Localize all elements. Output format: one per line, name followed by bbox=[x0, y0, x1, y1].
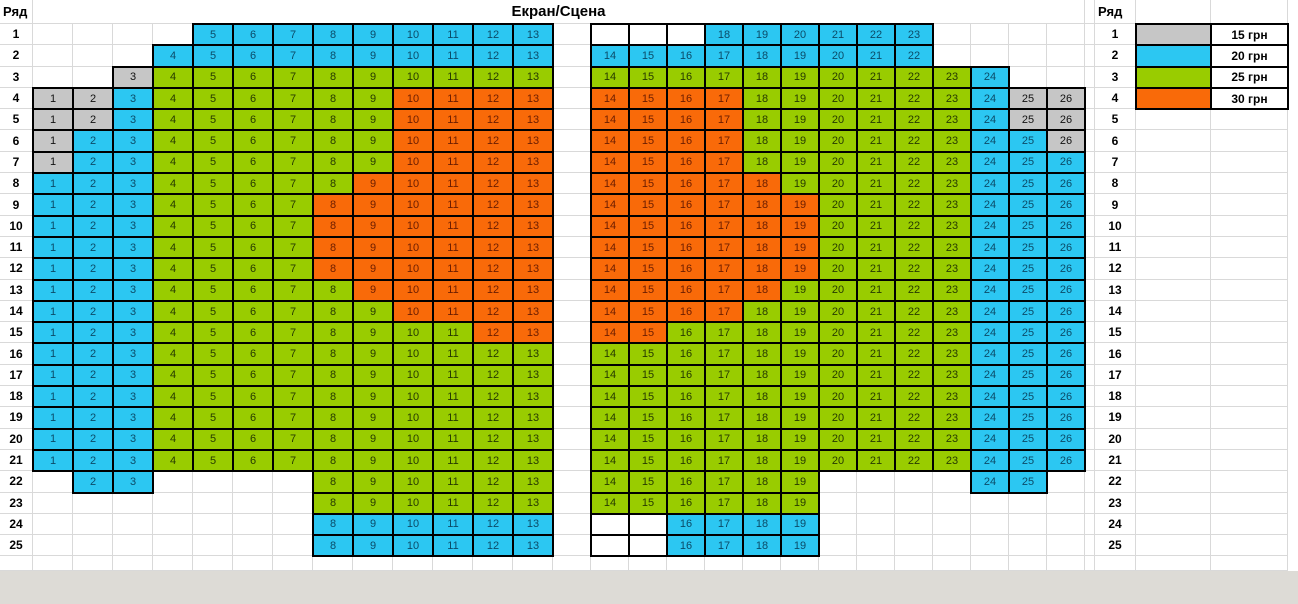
seat[interactable]: 2 bbox=[73, 152, 113, 173]
seat[interactable]: 9 bbox=[353, 258, 393, 279]
seat[interactable]: 7 bbox=[273, 301, 313, 322]
seat[interactable]: 7 bbox=[273, 152, 313, 173]
seat[interactable]: 16 bbox=[667, 386, 705, 407]
seat[interactable]: 17 bbox=[705, 514, 743, 535]
seat[interactable]: 21 bbox=[857, 280, 895, 301]
seat[interactable]: 22 bbox=[895, 109, 933, 130]
seat[interactable]: 10 bbox=[393, 301, 433, 322]
seat[interactable]: 5 bbox=[193, 407, 233, 428]
seat[interactable]: 19 bbox=[781, 237, 819, 258]
seat[interactable]: 19 bbox=[781, 280, 819, 301]
seat[interactable]: 21 bbox=[857, 301, 895, 322]
seat[interactable]: 19 bbox=[781, 322, 819, 343]
seat[interactable]: 9 bbox=[353, 173, 393, 194]
seat[interactable]: 22 bbox=[895, 130, 933, 151]
seat[interactable]: 10 bbox=[393, 535, 433, 556]
seat[interactable]: 17 bbox=[705, 152, 743, 173]
seat[interactable]: 1 bbox=[33, 386, 73, 407]
seat[interactable]: 25 bbox=[1009, 322, 1047, 343]
seat[interactable]: 12 bbox=[473, 514, 513, 535]
seat[interactable]: 16 bbox=[667, 493, 705, 514]
seat[interactable]: 18 bbox=[743, 343, 781, 364]
seat[interactable]: 11 bbox=[433, 301, 473, 322]
seat[interactable]: 7 bbox=[273, 88, 313, 109]
seat[interactable]: 6 bbox=[233, 258, 273, 279]
seat[interactable]: 21 bbox=[857, 322, 895, 343]
seat[interactable]: 7 bbox=[273, 429, 313, 450]
seat[interactable]: 25 bbox=[1009, 194, 1047, 215]
seat[interactable]: 15 bbox=[629, 173, 667, 194]
seat[interactable]: 11 bbox=[433, 407, 473, 428]
seat[interactable]: 15 bbox=[629, 109, 667, 130]
seat[interactable]: 6 bbox=[233, 407, 273, 428]
seat[interactable]: 22 bbox=[895, 301, 933, 322]
seat[interactable]: 10 bbox=[393, 173, 433, 194]
seat[interactable]: 12 bbox=[473, 173, 513, 194]
seat[interactable]: 18 bbox=[743, 194, 781, 215]
seat[interactable]: 3 bbox=[113, 109, 153, 130]
seat[interactable]: 19 bbox=[781, 130, 819, 151]
seat[interactable]: 15 bbox=[629, 216, 667, 237]
seat[interactable]: 13 bbox=[513, 216, 553, 237]
seat[interactable]: 2 bbox=[73, 88, 113, 109]
seat[interactable]: 26 bbox=[1047, 237, 1085, 258]
seat[interactable]: 11 bbox=[433, 450, 473, 471]
seat[interactable]: 6 bbox=[233, 216, 273, 237]
seat[interactable]: 6 bbox=[233, 173, 273, 194]
seat[interactable]: 5 bbox=[193, 45, 233, 66]
seat[interactable]: 14 bbox=[591, 194, 629, 215]
seat[interactable]: 8 bbox=[313, 514, 353, 535]
seat[interactable]: 5 bbox=[193, 343, 233, 364]
seat[interactable]: 24 bbox=[971, 280, 1009, 301]
seat[interactable]: 2 bbox=[73, 109, 113, 130]
seat[interactable]: 11 bbox=[433, 173, 473, 194]
seat[interactable]: 11 bbox=[433, 471, 473, 492]
seat[interactable]: 1 bbox=[33, 450, 73, 471]
seat[interactable]: 9 bbox=[353, 280, 393, 301]
seat[interactable]: 2 bbox=[73, 429, 113, 450]
seat[interactable]: 21 bbox=[857, 173, 895, 194]
seat[interactable]: 9 bbox=[353, 429, 393, 450]
seat[interactable]: 24 bbox=[971, 322, 1009, 343]
seat[interactable]: 23 bbox=[933, 194, 971, 215]
seat[interactable]: 12 bbox=[473, 407, 513, 428]
seat[interactable]: 25 bbox=[1009, 450, 1047, 471]
seat[interactable]: 7 bbox=[273, 450, 313, 471]
seat[interactable]: 16 bbox=[667, 450, 705, 471]
seat[interactable]: 11 bbox=[433, 493, 473, 514]
seat[interactable]: 24 bbox=[971, 301, 1009, 322]
seat[interactable]: 7 bbox=[273, 407, 313, 428]
seat[interactable]: 12 bbox=[473, 194, 513, 215]
seat[interactable]: 24 bbox=[971, 407, 1009, 428]
seat[interactable]: 3 bbox=[113, 386, 153, 407]
seat[interactable]: 21 bbox=[857, 343, 895, 364]
seat[interactable]: 17 bbox=[705, 258, 743, 279]
seat[interactable]: 25 bbox=[1009, 152, 1047, 173]
seat[interactable]: 18 bbox=[743, 237, 781, 258]
seat[interactable]: 24 bbox=[971, 130, 1009, 151]
seat[interactable]: 14 bbox=[591, 216, 629, 237]
seat[interactable]: 4 bbox=[153, 280, 193, 301]
seat[interactable]: 15 bbox=[629, 152, 667, 173]
seat[interactable]: 1 bbox=[33, 322, 73, 343]
seat[interactable]: 11 bbox=[433, 322, 473, 343]
seat[interactable]: 3 bbox=[113, 237, 153, 258]
seat[interactable]: 16 bbox=[667, 429, 705, 450]
seat[interactable]: 17 bbox=[705, 471, 743, 492]
seat[interactable]: 14 bbox=[591, 429, 629, 450]
seat[interactable]: 8 bbox=[313, 216, 353, 237]
seat[interactable]: 1 bbox=[33, 429, 73, 450]
seat[interactable]: 4 bbox=[153, 386, 193, 407]
seat[interactable]: 13 bbox=[513, 280, 553, 301]
seat[interactable]: 5 bbox=[193, 280, 233, 301]
seat[interactable]: 3 bbox=[113, 258, 153, 279]
seat[interactable]: 26 bbox=[1047, 386, 1085, 407]
seat[interactable]: 23 bbox=[933, 216, 971, 237]
seat[interactable]: 18 bbox=[743, 407, 781, 428]
seat[interactable]: 1 bbox=[33, 152, 73, 173]
seat[interactable]: 13 bbox=[513, 258, 553, 279]
seat[interactable]: 3 bbox=[113, 450, 153, 471]
seat[interactable]: 10 bbox=[393, 152, 433, 173]
seat[interactable]: 26 bbox=[1047, 194, 1085, 215]
seat[interactable]: 17 bbox=[705, 88, 743, 109]
seat[interactable]: 6 bbox=[233, 301, 273, 322]
seat[interactable]: 9 bbox=[353, 152, 393, 173]
seat[interactable]: 2 bbox=[73, 471, 113, 492]
seat[interactable]: 3 bbox=[113, 429, 153, 450]
seat[interactable]: 2 bbox=[73, 216, 113, 237]
seat[interactable]: 15 bbox=[629, 237, 667, 258]
seat[interactable]: 11 bbox=[433, 514, 473, 535]
seat[interactable]: 24 bbox=[971, 450, 1009, 471]
seat[interactable]: 4 bbox=[153, 301, 193, 322]
seat[interactable]: 19 bbox=[743, 24, 781, 45]
seat[interactable]: 23 bbox=[933, 88, 971, 109]
seat[interactable]: 21 bbox=[857, 109, 895, 130]
seat[interactable]: 6 bbox=[233, 152, 273, 173]
seat[interactable]: 16 bbox=[667, 194, 705, 215]
seat[interactable]: 9 bbox=[353, 216, 393, 237]
seat[interactable]: 26 bbox=[1047, 407, 1085, 428]
seat[interactable]: 16 bbox=[667, 301, 705, 322]
seat[interactable]: 21 bbox=[857, 152, 895, 173]
seat[interactable]: 16 bbox=[667, 407, 705, 428]
seat[interactable]: 20 bbox=[819, 450, 857, 471]
seat[interactable]: 16 bbox=[667, 365, 705, 386]
seat[interactable]: 17 bbox=[705, 67, 743, 88]
seat[interactable]: 18 bbox=[743, 67, 781, 88]
seat[interactable]: 25 bbox=[1009, 407, 1047, 428]
seat[interactable]: 25 bbox=[1009, 130, 1047, 151]
seat[interactable]: 9 bbox=[353, 493, 393, 514]
seat[interactable]: 10 bbox=[393, 24, 433, 45]
seat[interactable]: 25 bbox=[1009, 173, 1047, 194]
seat[interactable]: 13 bbox=[513, 152, 553, 173]
seat[interactable]: 15 bbox=[629, 130, 667, 151]
seat[interactable]: 9 bbox=[353, 301, 393, 322]
seat[interactable]: 22 bbox=[895, 365, 933, 386]
seat[interactable]: 20 bbox=[819, 173, 857, 194]
seat[interactable]: 13 bbox=[513, 471, 553, 492]
seat[interactable]: 7 bbox=[273, 216, 313, 237]
seat[interactable]: 19 bbox=[781, 386, 819, 407]
seat[interactable]: 13 bbox=[513, 343, 553, 364]
seat[interactable]: 6 bbox=[233, 24, 273, 45]
seat[interactable]: 22 bbox=[895, 258, 933, 279]
seat[interactable]: 5 bbox=[193, 109, 233, 130]
seat[interactable]: 15 bbox=[629, 258, 667, 279]
seat[interactable]: 20 bbox=[819, 429, 857, 450]
seat[interactable]: 17 bbox=[705, 194, 743, 215]
seat[interactable]: 12 bbox=[473, 280, 513, 301]
seat[interactable]: 2 bbox=[73, 407, 113, 428]
seat[interactable]: 18 bbox=[743, 429, 781, 450]
seat[interactable]: 11 bbox=[433, 130, 473, 151]
seat[interactable]: 19 bbox=[781, 407, 819, 428]
seat[interactable]: 21 bbox=[857, 258, 895, 279]
seat[interactable]: 9 bbox=[353, 450, 393, 471]
seat[interactable]: 20 bbox=[819, 322, 857, 343]
seat[interactable]: 10 bbox=[393, 471, 433, 492]
seat[interactable]: 16 bbox=[667, 471, 705, 492]
seat[interactable]: 17 bbox=[705, 109, 743, 130]
seat[interactable]: 14 bbox=[591, 109, 629, 130]
seat[interactable]: 8 bbox=[313, 535, 353, 556]
seat[interactable]: 26 bbox=[1047, 258, 1085, 279]
seat[interactable]: 2 bbox=[73, 173, 113, 194]
seat[interactable]: 8 bbox=[313, 386, 353, 407]
seat[interactable]: 13 bbox=[513, 493, 553, 514]
seat[interactable]: 11 bbox=[433, 67, 473, 88]
seat[interactable]: 11 bbox=[433, 365, 473, 386]
seat[interactable]: 7 bbox=[273, 109, 313, 130]
seat[interactable]: 17 bbox=[705, 216, 743, 237]
seat[interactable]: 4 bbox=[153, 343, 193, 364]
seat[interactable]: 12 bbox=[473, 386, 513, 407]
seat[interactable]: 25 bbox=[1009, 365, 1047, 386]
seat[interactable]: 15 bbox=[629, 280, 667, 301]
seat[interactable]: 1 bbox=[33, 365, 73, 386]
seat[interactable]: 14 bbox=[591, 152, 629, 173]
seat[interactable]: 25 bbox=[1009, 216, 1047, 237]
seat[interactable]: 19 bbox=[781, 450, 819, 471]
seat[interactable]: 9 bbox=[353, 535, 393, 556]
seat[interactable]: 13 bbox=[513, 535, 553, 556]
seat[interactable]: 10 bbox=[393, 67, 433, 88]
seat[interactable]: 17 bbox=[705, 301, 743, 322]
seat[interactable]: 23 bbox=[933, 258, 971, 279]
seat[interactable]: 3 bbox=[113, 280, 153, 301]
seat[interactable]: 15 bbox=[629, 386, 667, 407]
seat[interactable]: 1 bbox=[33, 173, 73, 194]
seat[interactable]: 12 bbox=[473, 493, 513, 514]
seat[interactable]: 21 bbox=[819, 24, 857, 45]
seat[interactable]: 16 bbox=[667, 173, 705, 194]
seat[interactable]: 23 bbox=[933, 109, 971, 130]
seat[interactable]: 14 bbox=[591, 450, 629, 471]
seat[interactable]: 9 bbox=[353, 24, 393, 45]
seat[interactable]: 17 bbox=[705, 173, 743, 194]
seat[interactable]: 26 bbox=[1047, 109, 1085, 130]
seat[interactable]: 6 bbox=[233, 386, 273, 407]
seat[interactable]: 25 bbox=[1009, 343, 1047, 364]
seat[interactable]: 24 bbox=[971, 386, 1009, 407]
seat[interactable]: 19 bbox=[781, 343, 819, 364]
seat[interactable]: 4 bbox=[153, 152, 193, 173]
seat[interactable]: 22 bbox=[895, 280, 933, 301]
seat[interactable]: 22 bbox=[895, 45, 933, 66]
seat[interactable]: 13 bbox=[513, 24, 553, 45]
seat[interactable]: 18 bbox=[743, 173, 781, 194]
seat[interactable]: 18 bbox=[743, 130, 781, 151]
seat[interactable]: 16 bbox=[667, 237, 705, 258]
seat[interactable]: 24 bbox=[971, 109, 1009, 130]
seat[interactable]: 12 bbox=[473, 216, 513, 237]
seat[interactable]: 2 bbox=[73, 258, 113, 279]
seat[interactable]: 8 bbox=[313, 194, 353, 215]
seat[interactable]: 12 bbox=[473, 130, 513, 151]
seat[interactable]: 2 bbox=[73, 130, 113, 151]
seat[interactable]: 15 bbox=[629, 471, 667, 492]
seat[interactable]: 6 bbox=[233, 343, 273, 364]
seat[interactable]: 10 bbox=[393, 365, 433, 386]
seat[interactable]: 11 bbox=[433, 45, 473, 66]
seat[interactable]: 11 bbox=[433, 24, 473, 45]
seat[interactable]: 11 bbox=[433, 386, 473, 407]
seat[interactable]: 13 bbox=[513, 429, 553, 450]
seat[interactable]: 20 bbox=[819, 109, 857, 130]
seat[interactable]: 21 bbox=[857, 429, 895, 450]
seat[interactable]: 15 bbox=[629, 429, 667, 450]
seat[interactable]: 12 bbox=[473, 24, 513, 45]
seat[interactable]: 22 bbox=[895, 194, 933, 215]
seat[interactable]: 1 bbox=[33, 216, 73, 237]
seat[interactable]: 14 bbox=[591, 322, 629, 343]
seat[interactable]: 5 bbox=[193, 237, 233, 258]
seat[interactable]: 1 bbox=[33, 258, 73, 279]
seat[interactable]: 10 bbox=[393, 429, 433, 450]
seat[interactable]: 24 bbox=[971, 194, 1009, 215]
seat[interactable]: 22 bbox=[895, 237, 933, 258]
seat[interactable]: 22 bbox=[895, 67, 933, 88]
seat[interactable]: 10 bbox=[393, 514, 433, 535]
seat[interactable]: 10 bbox=[393, 280, 433, 301]
seat[interactable]: 26 bbox=[1047, 88, 1085, 109]
seat[interactable]: 15 bbox=[629, 493, 667, 514]
seat[interactable]: 8 bbox=[313, 258, 353, 279]
seat[interactable]: 18 bbox=[743, 471, 781, 492]
seat[interactable]: 8 bbox=[313, 130, 353, 151]
seat[interactable]: 13 bbox=[513, 88, 553, 109]
seat[interactable]: 2 bbox=[73, 322, 113, 343]
seat[interactable]: 10 bbox=[393, 88, 433, 109]
seat[interactable]: 9 bbox=[353, 109, 393, 130]
seat[interactable]: 8 bbox=[313, 471, 353, 492]
seat[interactable]: 14 bbox=[591, 237, 629, 258]
seat[interactable]: 3 bbox=[113, 365, 153, 386]
seat[interactable]: 24 bbox=[971, 343, 1009, 364]
seat[interactable]: 11 bbox=[433, 343, 473, 364]
seat[interactable]: 20 bbox=[819, 45, 857, 66]
seat[interactable]: 23 bbox=[933, 450, 971, 471]
seat[interactable]: 13 bbox=[513, 194, 553, 215]
seat[interactable]: 15 bbox=[629, 67, 667, 88]
seat[interactable]: 9 bbox=[353, 407, 393, 428]
seat[interactable]: 11 bbox=[433, 194, 473, 215]
seat[interactable]: 24 bbox=[971, 67, 1009, 88]
seat[interactable]: 7 bbox=[273, 343, 313, 364]
seat[interactable]: 17 bbox=[705, 130, 743, 151]
seat[interactable]: 18 bbox=[705, 24, 743, 45]
seat[interactable]: 9 bbox=[353, 343, 393, 364]
seat[interactable]: 16 bbox=[667, 258, 705, 279]
seat[interactable]: 15 bbox=[629, 365, 667, 386]
seat[interactable]: 3 bbox=[113, 216, 153, 237]
seat[interactable]: 9 bbox=[353, 322, 393, 343]
seat[interactable]: 9 bbox=[353, 471, 393, 492]
seat[interactable]: 23 bbox=[933, 237, 971, 258]
seat[interactable]: 26 bbox=[1047, 130, 1085, 151]
seat[interactable]: 4 bbox=[153, 109, 193, 130]
seat[interactable]: 17 bbox=[705, 280, 743, 301]
seat[interactable]: 14 bbox=[591, 471, 629, 492]
seat[interactable]: 11 bbox=[433, 216, 473, 237]
seat[interactable]: 15 bbox=[629, 450, 667, 471]
seat[interactable]: 13 bbox=[513, 45, 553, 66]
seat[interactable]: 24 bbox=[971, 471, 1009, 492]
seat[interactable]: 4 bbox=[153, 173, 193, 194]
seat[interactable]: 5 bbox=[193, 258, 233, 279]
seat[interactable]: 16 bbox=[667, 152, 705, 173]
seat[interactable]: 11 bbox=[433, 152, 473, 173]
seat[interactable]: 18 bbox=[743, 450, 781, 471]
seat[interactable]: 24 bbox=[971, 88, 1009, 109]
seat[interactable]: 14 bbox=[591, 493, 629, 514]
seat[interactable]: 17 bbox=[705, 322, 743, 343]
seat[interactable]: 2 bbox=[73, 343, 113, 364]
seat[interactable]: 13 bbox=[513, 386, 553, 407]
seat[interactable]: 17 bbox=[705, 407, 743, 428]
seat[interactable]: 14 bbox=[591, 365, 629, 386]
seat[interactable]: 11 bbox=[433, 258, 473, 279]
seat[interactable]: 18 bbox=[743, 301, 781, 322]
seat[interactable]: 17 bbox=[705, 386, 743, 407]
seat[interactable]: 15 bbox=[629, 194, 667, 215]
seat[interactable]: 22 bbox=[895, 386, 933, 407]
seat[interactable]: 4 bbox=[153, 429, 193, 450]
seat[interactable]: 10 bbox=[393, 109, 433, 130]
seat[interactable]: 22 bbox=[895, 322, 933, 343]
seat[interactable]: 2 bbox=[73, 301, 113, 322]
seat[interactable]: 12 bbox=[473, 301, 513, 322]
seat[interactable]: 10 bbox=[393, 386, 433, 407]
seat[interactable]: 21 bbox=[857, 407, 895, 428]
seat[interactable]: 1 bbox=[33, 109, 73, 130]
seat[interactable]: 19 bbox=[781, 45, 819, 66]
seat[interactable]: 14 bbox=[591, 258, 629, 279]
seat[interactable]: 6 bbox=[233, 194, 273, 215]
seat[interactable]: 8 bbox=[313, 173, 353, 194]
seat[interactable]: 23 bbox=[933, 173, 971, 194]
seat[interactable]: 1 bbox=[33, 343, 73, 364]
seat[interactable]: 19 bbox=[781, 194, 819, 215]
seat[interactable]: 26 bbox=[1047, 343, 1085, 364]
seat[interactable]: 12 bbox=[473, 45, 513, 66]
